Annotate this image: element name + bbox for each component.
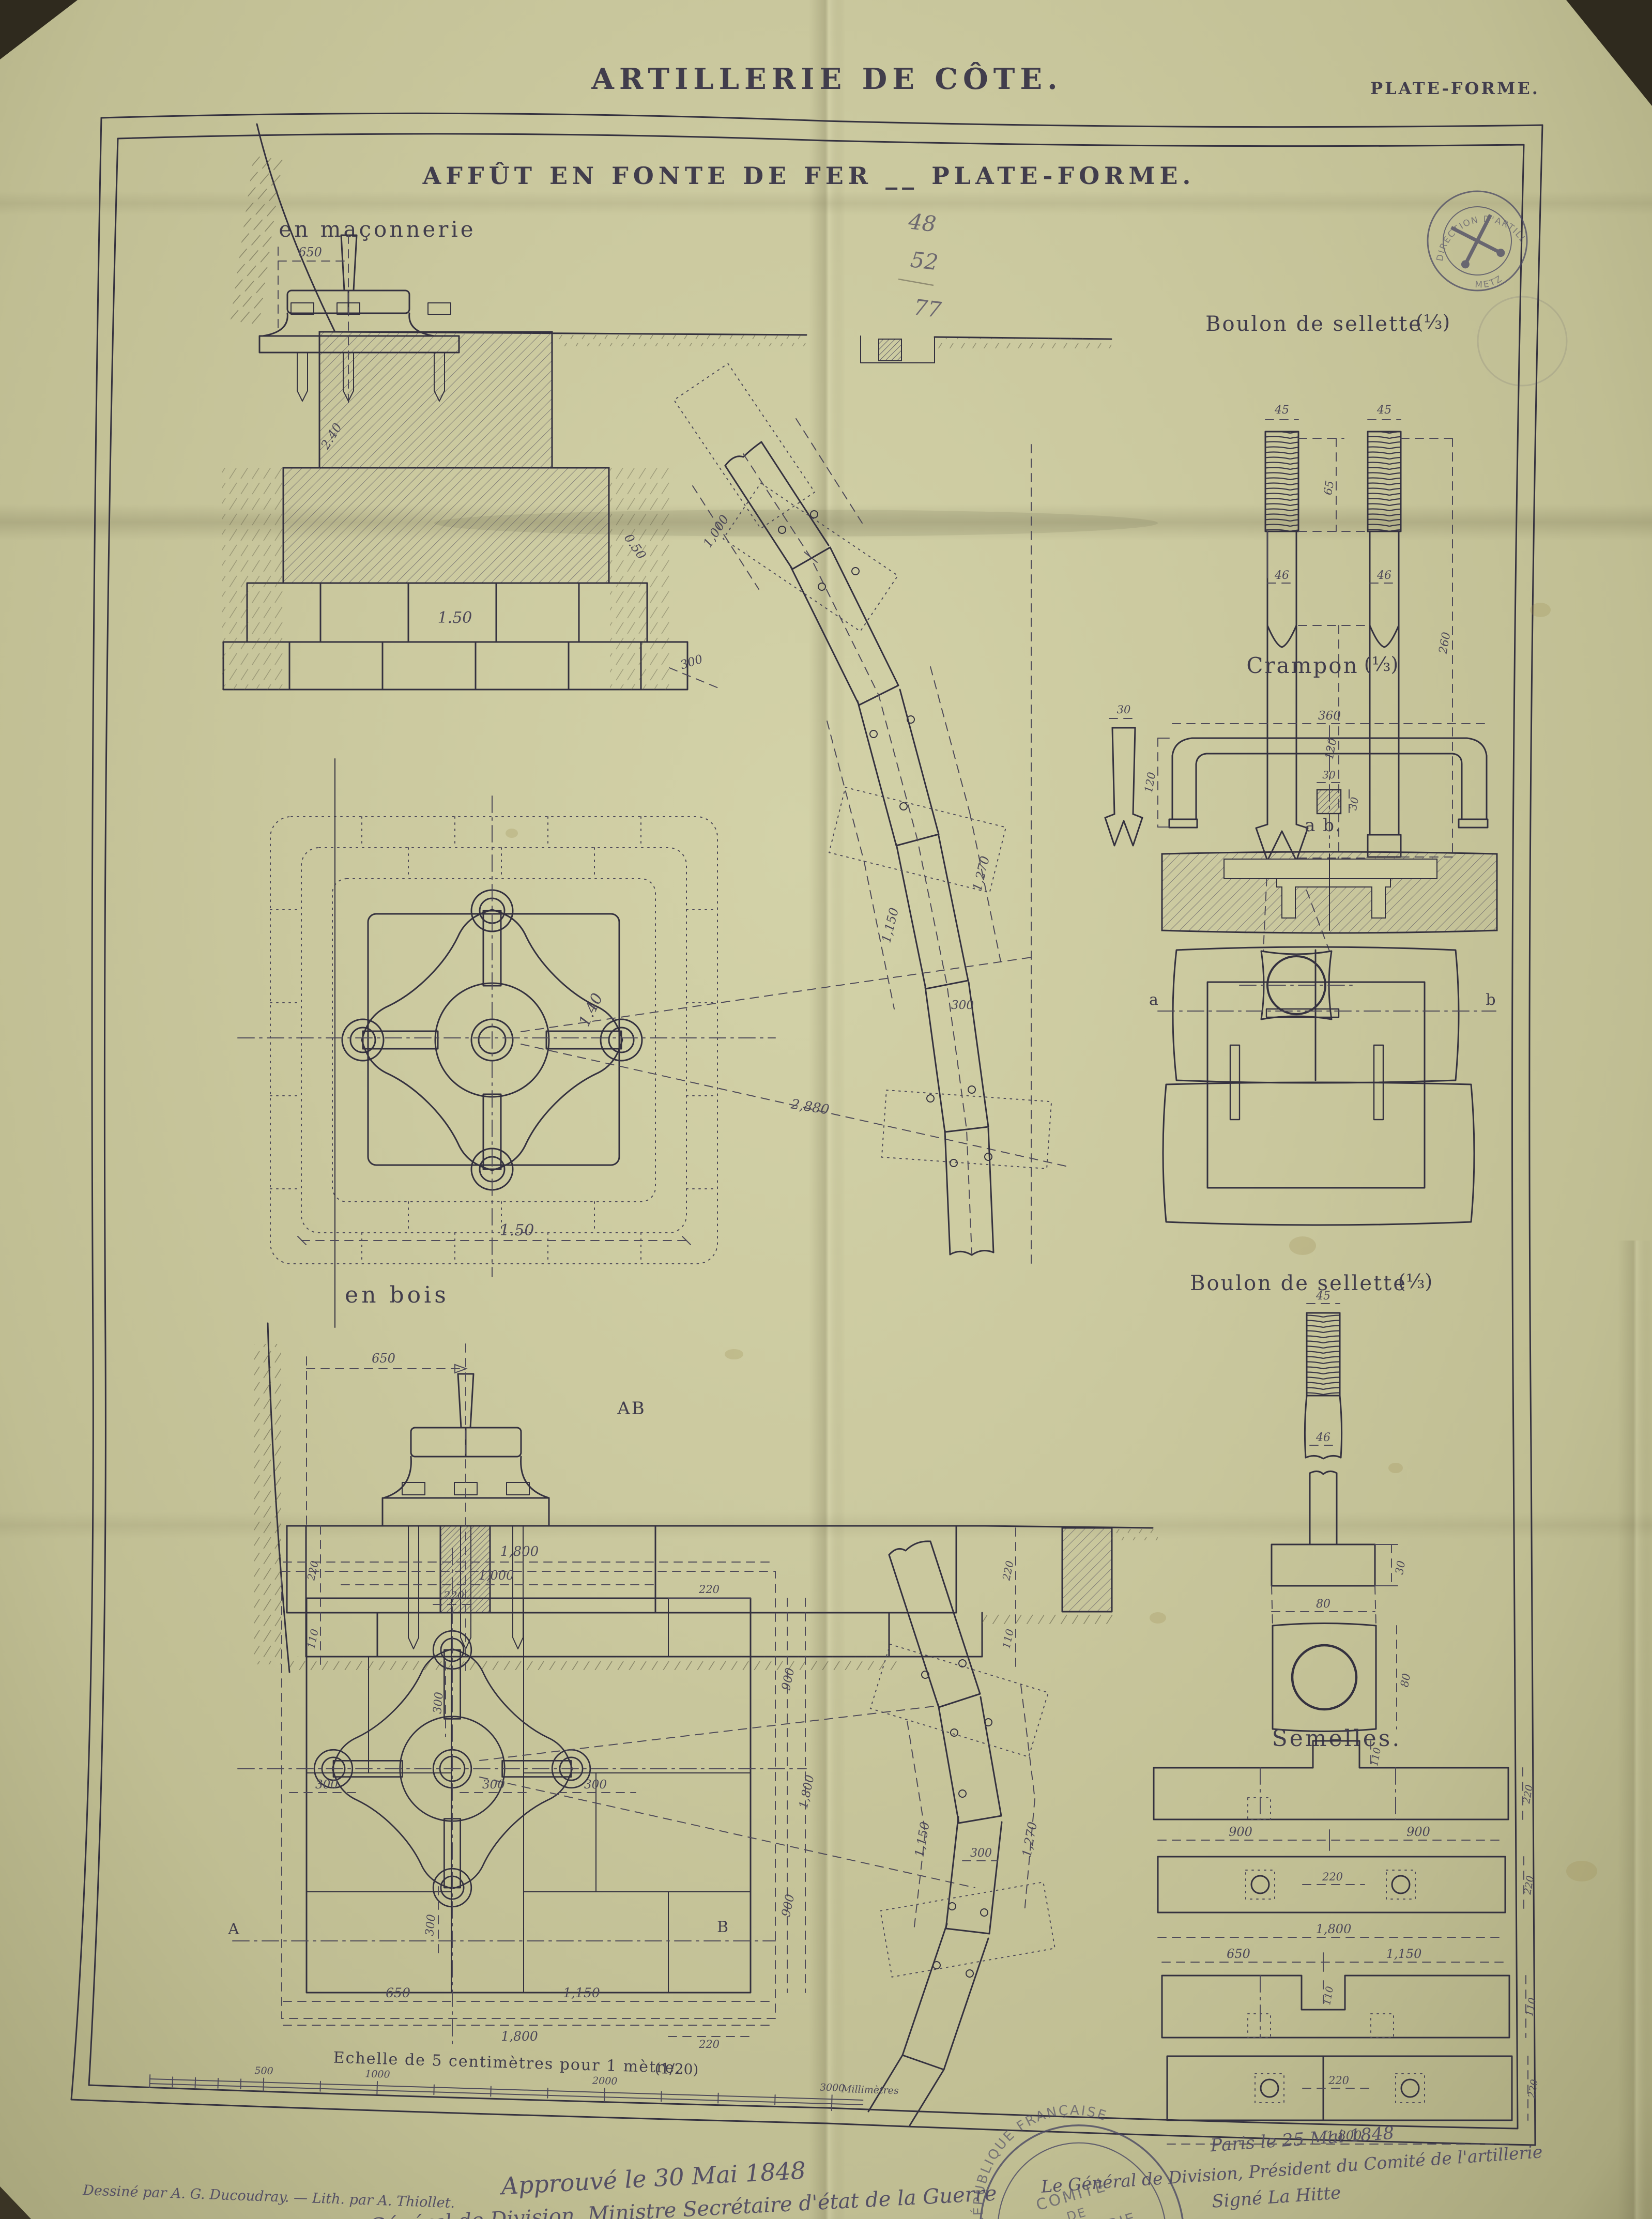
figure-label: Crampon bbox=[1246, 653, 1358, 678]
section-label: a b. bbox=[1305, 815, 1342, 836]
scale-fraction: (1/20) bbox=[654, 2060, 699, 2078]
dim: 300 bbox=[315, 1778, 338, 1792]
pencil-note: 48 bbox=[907, 208, 938, 237]
dim: 1.50 bbox=[500, 1221, 534, 1239]
dim: 220 bbox=[1526, 2078, 1540, 2100]
dim: 30 bbox=[1347, 796, 1361, 812]
stones-plan-figure: a b bbox=[1149, 947, 1496, 1225]
dim: 300 bbox=[482, 1778, 505, 1792]
stone-joints bbox=[270, 817, 717, 1264]
dated-line1: Paris le 25 Mai 1848 bbox=[1209, 2123, 1395, 2156]
dim: 650 bbox=[372, 1351, 395, 1366]
dim: 900 bbox=[1406, 1825, 1430, 1839]
plate-scan: ARTILLERIE DE CÔTE. PLATE-FORME. AFFÛT E… bbox=[0, 0, 1652, 2219]
wood-section-figure: en bois bbox=[254, 1282, 1158, 1675]
figure-label: Semelles. bbox=[1272, 1725, 1402, 1752]
wood-plan-figure: A B 1,800 1,000 220 220 900 1,800 900 22… bbox=[227, 1544, 975, 2050]
section-letter: a bbox=[1149, 991, 1158, 1009]
dim: 46 bbox=[1316, 1431, 1330, 1444]
dim: 650 bbox=[386, 1985, 410, 2000]
masonry-plan-figure: 1.40 1.50 bbox=[238, 759, 1066, 1327]
figure-label: en maçonnerie bbox=[279, 217, 476, 242]
plate-drawing: ARTILLERIE DE CÔTE. PLATE-FORME. AFFÛT E… bbox=[0, 0, 1652, 2219]
dim: 1,150 bbox=[1386, 1947, 1422, 1961]
crampon-figure: Crampon (⅓) 30 360 120 30 30 a bbox=[1105, 653, 1497, 933]
dim: 45 bbox=[1376, 404, 1391, 417]
figure-label: Boulon de sellette bbox=[1205, 312, 1422, 336]
semelles-figure: Semelles. 110 220 900 900 220 220 1,800 bbox=[1154, 1725, 1540, 2144]
pencil-note: 52 bbox=[909, 247, 940, 275]
corner-label: PLATE-FORME. bbox=[1370, 79, 1540, 98]
dim: 120 bbox=[1142, 771, 1158, 794]
dim: 1.50 bbox=[438, 609, 472, 627]
dim: 1,150 bbox=[912, 1820, 932, 1858]
scale-tick: 500 bbox=[254, 2065, 273, 2077]
dim: 300 bbox=[584, 1778, 607, 1792]
dim: 110 bbox=[1524, 1997, 1538, 2017]
dim: 900 bbox=[1229, 1825, 1252, 1839]
section-letter: A bbox=[227, 1920, 239, 1938]
section-mark: AB bbox=[617, 1398, 646, 1419]
dim: 1,270 bbox=[1019, 1820, 1040, 1858]
dim: 360 bbox=[1318, 709, 1341, 723]
boulon-sellette-right-figure: Boulon de sellette (⅓) 45 46 30 80 80 bbox=[1190, 1270, 1432, 1732]
dim: 300 bbox=[431, 1691, 446, 1714]
stamp-line: DE bbox=[1065, 2205, 1089, 2219]
dim: 45 bbox=[1316, 1290, 1330, 1303]
dim: 900 bbox=[779, 1893, 798, 1918]
dim: 260 bbox=[1436, 631, 1453, 655]
scale-tick: 1000 bbox=[365, 2068, 390, 2080]
dated-line3: Signé La Hitte bbox=[1211, 2182, 1342, 2212]
section-letter: b bbox=[1486, 991, 1495, 1009]
comite-artillerie-stamp: RÉPUBLIQUE FRANÇAISE COMITÉ DE L'ARTILLE… bbox=[945, 2078, 1209, 2219]
dim: 300 bbox=[679, 652, 705, 672]
dim: 220 bbox=[698, 2038, 720, 2050]
dim: 220 bbox=[1000, 1559, 1016, 1582]
dim: 1,150 bbox=[879, 906, 901, 944]
figure-scale: (⅓) bbox=[1416, 311, 1450, 333]
pencil-note: 77 bbox=[912, 294, 943, 323]
dim: 110 bbox=[1000, 1628, 1016, 1650]
dim: 1,270 bbox=[970, 854, 992, 892]
dim: 300 bbox=[970, 1847, 992, 1860]
ghost-sleepers bbox=[674, 363, 1051, 1169]
figure-scale: (⅓) bbox=[1364, 653, 1398, 676]
dim: 1,800 bbox=[1316, 1922, 1352, 1936]
dim: 65 bbox=[1322, 480, 1337, 496]
dim: 300 bbox=[951, 999, 974, 1012]
dim: 1,800 bbox=[500, 1544, 539, 1559]
dim: 220 bbox=[698, 1583, 720, 1596]
dim: 1,000 bbox=[479, 1568, 514, 1583]
dim: 1,150 bbox=[563, 1985, 600, 2000]
dim: 650 bbox=[298, 245, 322, 259]
pencil-notes: 48 52 77 bbox=[898, 208, 943, 323]
dim: 30 bbox=[1117, 703, 1131, 716]
dim: 80 bbox=[1316, 1598, 1330, 1611]
dim: 220 bbox=[443, 1589, 464, 1602]
dim: 220 bbox=[304, 1559, 321, 1582]
dim: 30 bbox=[1393, 1560, 1408, 1575]
figure-label: Boulon de sellette bbox=[1190, 1272, 1407, 1295]
dim: 650 bbox=[1227, 1947, 1250, 1961]
scale-tick: 2000 bbox=[592, 2075, 618, 2087]
scale-unit: Millimètres bbox=[841, 2084, 899, 2096]
page-title: ARTILLERIE DE CÔTE. bbox=[591, 62, 1062, 96]
dim: 220 bbox=[1328, 2074, 1349, 2087]
crampon-in-stone-section bbox=[1162, 852, 1497, 933]
scale-bar: Echelle de 5 centimètres pour 1 mètre. (… bbox=[149, 2043, 899, 2113]
dim: 46 bbox=[1274, 569, 1289, 582]
dim: 1,800 bbox=[501, 2029, 538, 2044]
dim: 120 bbox=[1323, 737, 1340, 761]
figure-scale: (⅓) bbox=[1398, 1270, 1432, 1293]
plate-subtitle: AFFÛT EN FONTE DE FER __ PLATE-FORME. bbox=[422, 161, 1196, 190]
dim: 80 bbox=[1398, 1673, 1413, 1688]
dim: 220 bbox=[1322, 1871, 1343, 1883]
dim: 300 bbox=[423, 1914, 438, 1936]
dim: 900 bbox=[779, 1666, 798, 1691]
section-letter: B bbox=[717, 1918, 728, 1936]
ghost-sleepers bbox=[870, 1644, 1055, 1977]
dim: 45 bbox=[1274, 404, 1289, 417]
dim: 46 bbox=[1376, 569, 1391, 582]
rail-arc-upper-figure: 1,000 300 1,150 1,270 2,880 300 bbox=[669, 363, 1051, 1266]
figure-label: en bois bbox=[345, 1282, 449, 1308]
paper-stains bbox=[506, 603, 1597, 1881]
rail-arc-lower-figure: 1,150 300 1,270 bbox=[868, 1541, 1055, 2125]
ghost-stamp bbox=[1478, 297, 1567, 386]
credit-line: Dessiné par A. G. Ducoudray. — Lith. par… bbox=[82, 2182, 455, 2211]
